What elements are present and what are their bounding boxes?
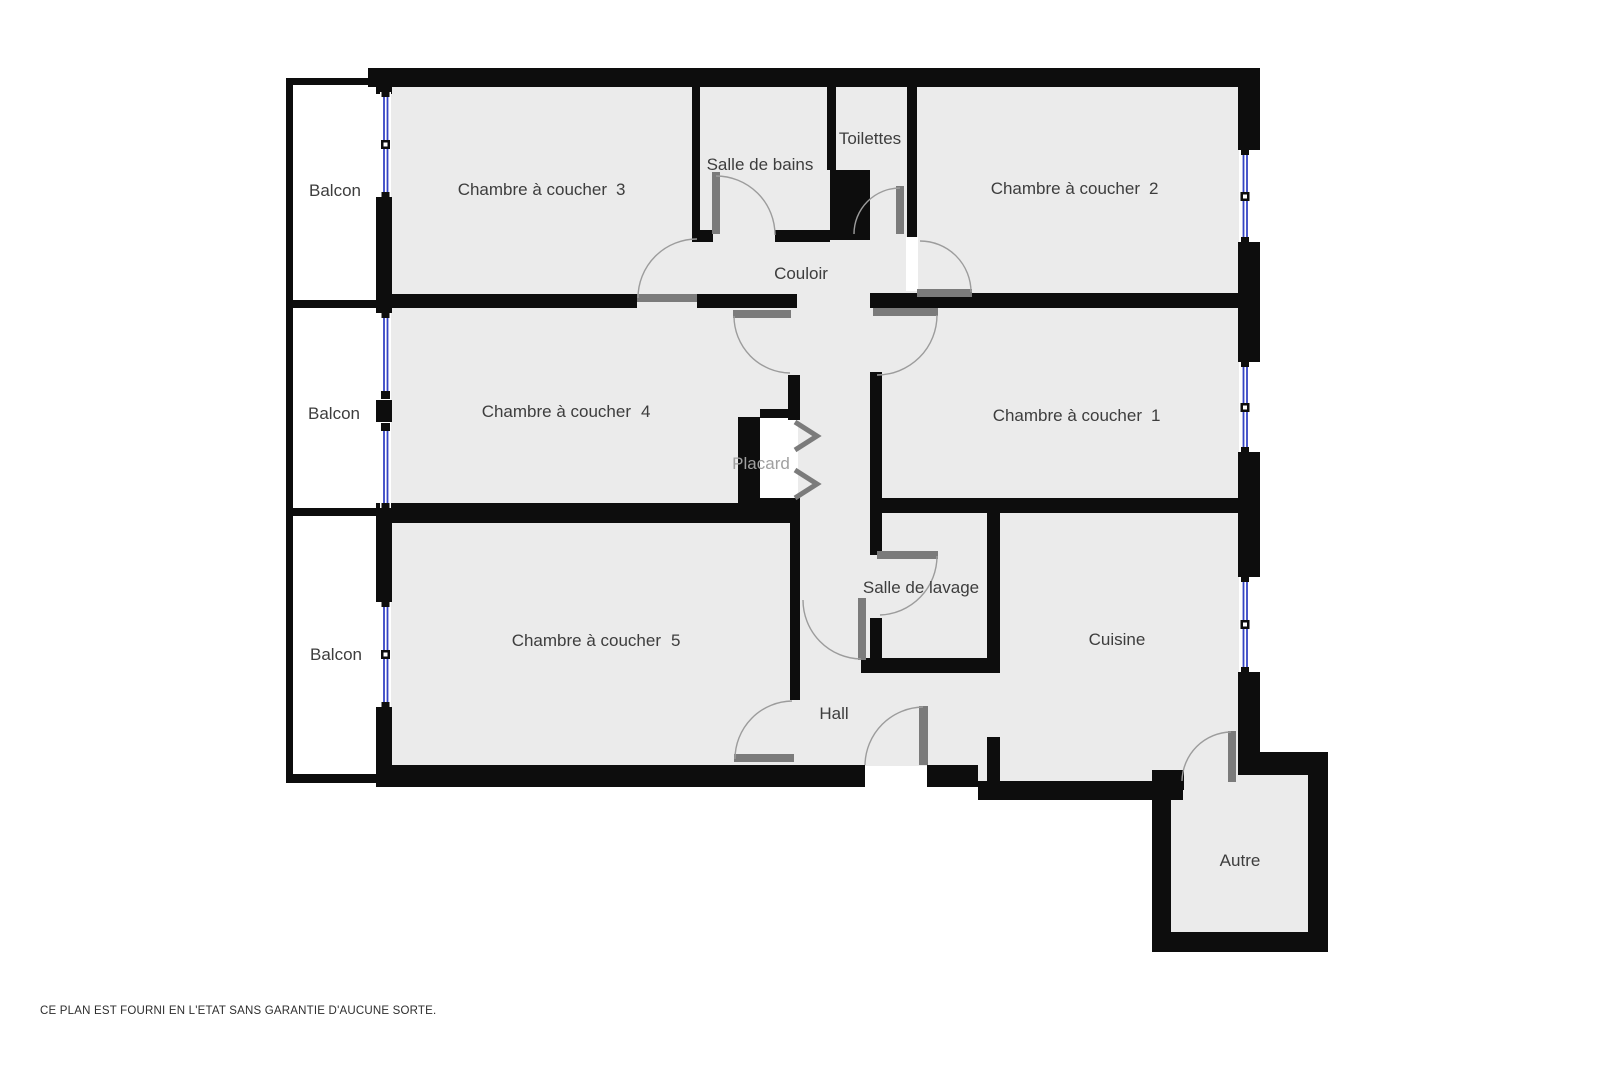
window-bedroom4-lower bbox=[380, 422, 391, 508]
room-label-salle-de-bains: Salle de bains bbox=[707, 155, 814, 174]
bedroom2-door-gap bbox=[906, 237, 918, 291]
room-label-cuisine: Cuisine bbox=[1089, 630, 1146, 649]
window-bedroom2 bbox=[1239, 150, 1251, 242]
room-label-chambre-5: Chambre à coucher bbox=[512, 631, 662, 650]
disclaimer-text: CE PLAN EST FOURNI EN L'ETAT SANS GARANT… bbox=[40, 1005, 436, 1017]
room-number-chambre-3: 3 bbox=[616, 180, 625, 199]
room-label-salle-de-lavage: Salle de lavage bbox=[863, 578, 979, 597]
room-label-hall: Hall bbox=[819, 704, 848, 723]
room-label-couloir: Couloir bbox=[774, 264, 828, 283]
room-number-chambre-4: 4 bbox=[641, 402, 650, 421]
room-label-chambre-3: Chambre à coucher bbox=[458, 180, 608, 199]
room-label-placard: Placard bbox=[732, 454, 790, 473]
room-label-chambre-2: Chambre à coucher bbox=[991, 179, 1141, 198]
room-number-chambre-2: 2 bbox=[1149, 179, 1158, 198]
room-number-chambre-5: 5 bbox=[671, 631, 680, 650]
room-number-chambre-1: 1 bbox=[1151, 406, 1160, 425]
room-label-balcon-1: Balcon bbox=[309, 181, 361, 200]
window-bedroom3 bbox=[380, 92, 391, 197]
room-label-balcon-2: Balcon bbox=[308, 404, 360, 423]
window-bedroom1 bbox=[1239, 362, 1251, 452]
window-bedroom4-upper bbox=[380, 313, 391, 400]
window-bedroom5 bbox=[380, 602, 391, 707]
window-kitchen bbox=[1239, 577, 1251, 672]
room-label-autre: Autre bbox=[1220, 851, 1261, 870]
room-label-chambre-4: Chambre à coucher bbox=[482, 402, 632, 421]
room-label-toilettes: Toilettes bbox=[839, 129, 901, 148]
room-label-chambre-1: Chambre à coucher bbox=[993, 406, 1143, 425]
floor-plan: Balcon Balcon Balcon Chambre à coucher 3… bbox=[0, 0, 1600, 1066]
room-label-balcon-3: Balcon bbox=[310, 645, 362, 664]
